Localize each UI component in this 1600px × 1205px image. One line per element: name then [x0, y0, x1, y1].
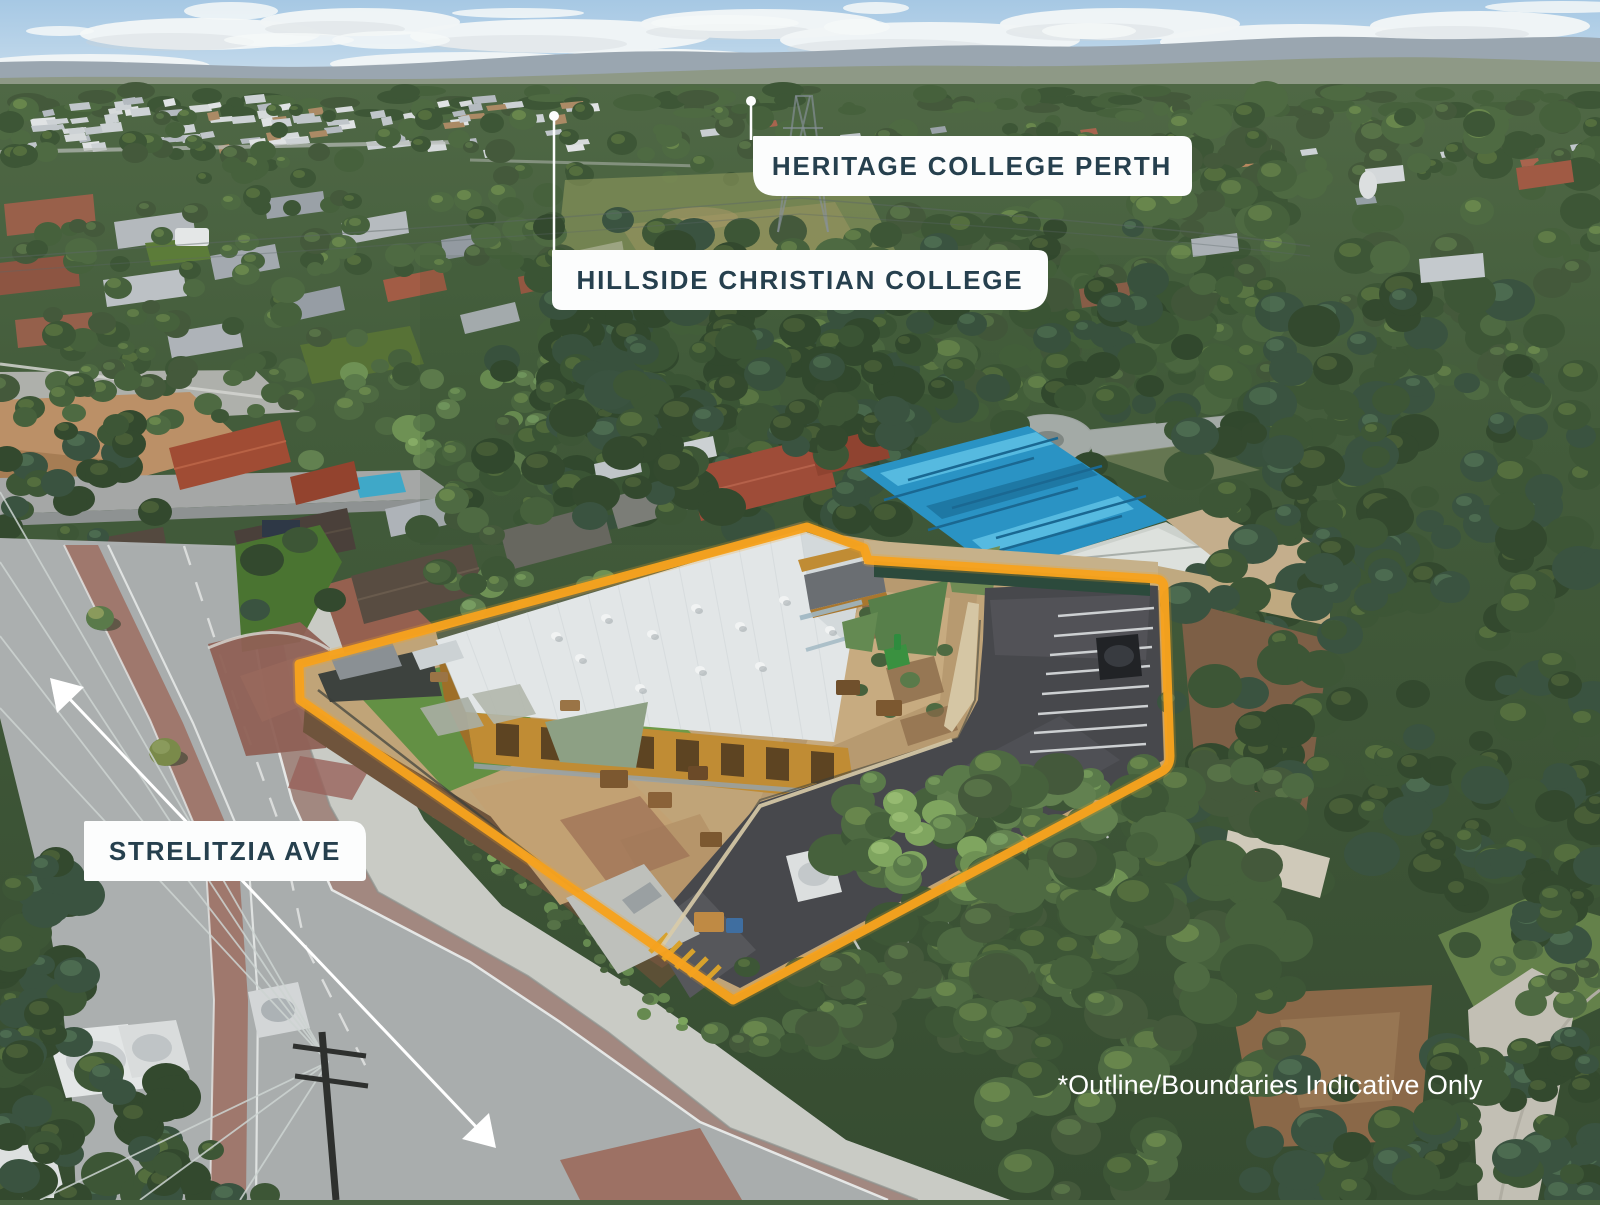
svg-text:*Outline/Boundaries Indicative: *Outline/Boundaries Indicative Only [1058, 1070, 1483, 1100]
svg-text:HERITAGE COLLEGE PERTH: HERITAGE COLLEGE PERTH [772, 151, 1172, 181]
svg-text:STRELITZIA AVE: STRELITZIA AVE [109, 836, 341, 866]
svg-text:HILLSIDE CHRISTIAN COLLEGE: HILLSIDE CHRISTIAN COLLEGE [577, 265, 1024, 295]
